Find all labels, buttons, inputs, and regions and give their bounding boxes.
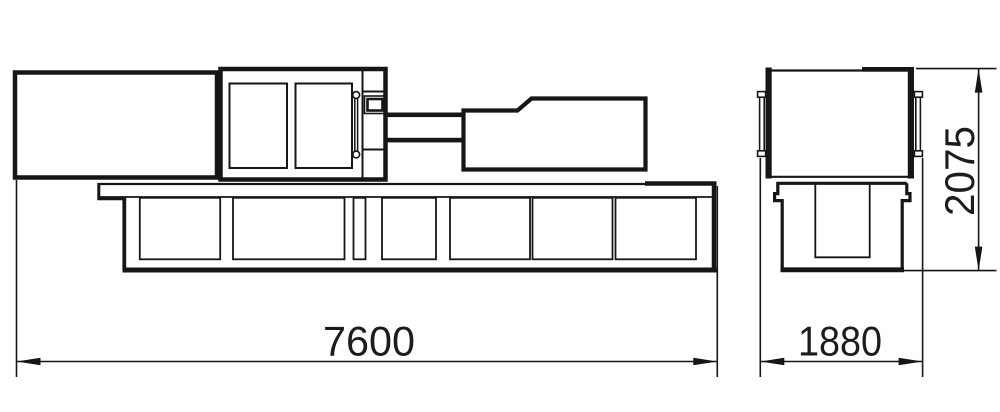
clamping-housing (15, 73, 217, 178)
arrowhead-left (17, 358, 41, 366)
arrowhead-left (760, 358, 784, 366)
dimension-value-height: 2075 (936, 126, 983, 216)
arrowhead-right (693, 358, 717, 366)
base-panel-5 (533, 198, 613, 259)
base-panel-2 (233, 198, 345, 259)
arrowhead-bottom (975, 247, 983, 271)
safety-door-right (296, 84, 353, 169)
machine-end-view (758, 68, 923, 270)
machine-base (98, 183, 717, 270)
end-view-right-column (908, 68, 914, 179)
end-view-left-column (766, 68, 772, 179)
left-rail-top-nub (758, 92, 766, 98)
control-panel-screen (368, 99, 383, 111)
base-panel-1 (140, 198, 220, 259)
base-panel-4 (450, 198, 530, 259)
injection-unit-body (464, 99, 646, 170)
dimension-value-length: 7600 (323, 318, 415, 365)
base-panel-6 (616, 198, 697, 259)
door-handle-bar (355, 96, 358, 154)
right-guide-rail (916, 97, 921, 151)
left-rail-bottom-nub (758, 151, 766, 157)
end-view-pedestal-outline (775, 183, 910, 268)
tie-bar-lower (386, 138, 464, 143)
guard-cabinet (221, 69, 386, 180)
right-rail-top-nub (914, 92, 922, 98)
technical-drawing-canvas: 7600 1880 2075 (0, 0, 1000, 412)
machine-side-view (15, 69, 717, 270)
dimension-value-width: 1880 (798, 318, 882, 365)
base-panel-3 (382, 198, 436, 259)
tie-bar-upper (386, 113, 464, 118)
left-guide-rail (760, 97, 765, 151)
arrowhead-top (975, 69, 983, 93)
machine-dimension-drawing: 7600 1880 2075 (0, 0, 1000, 412)
door-handle-top-knob (353, 92, 360, 99)
door-handle-bottom-knob (353, 151, 360, 158)
end-view-pedestal-recess (815, 184, 869, 258)
safety-door-left (230, 84, 288, 169)
base-panel-narrow (354, 198, 366, 259)
arrowhead-right (899, 358, 923, 366)
right-rail-bottom-nub (914, 151, 922, 157)
